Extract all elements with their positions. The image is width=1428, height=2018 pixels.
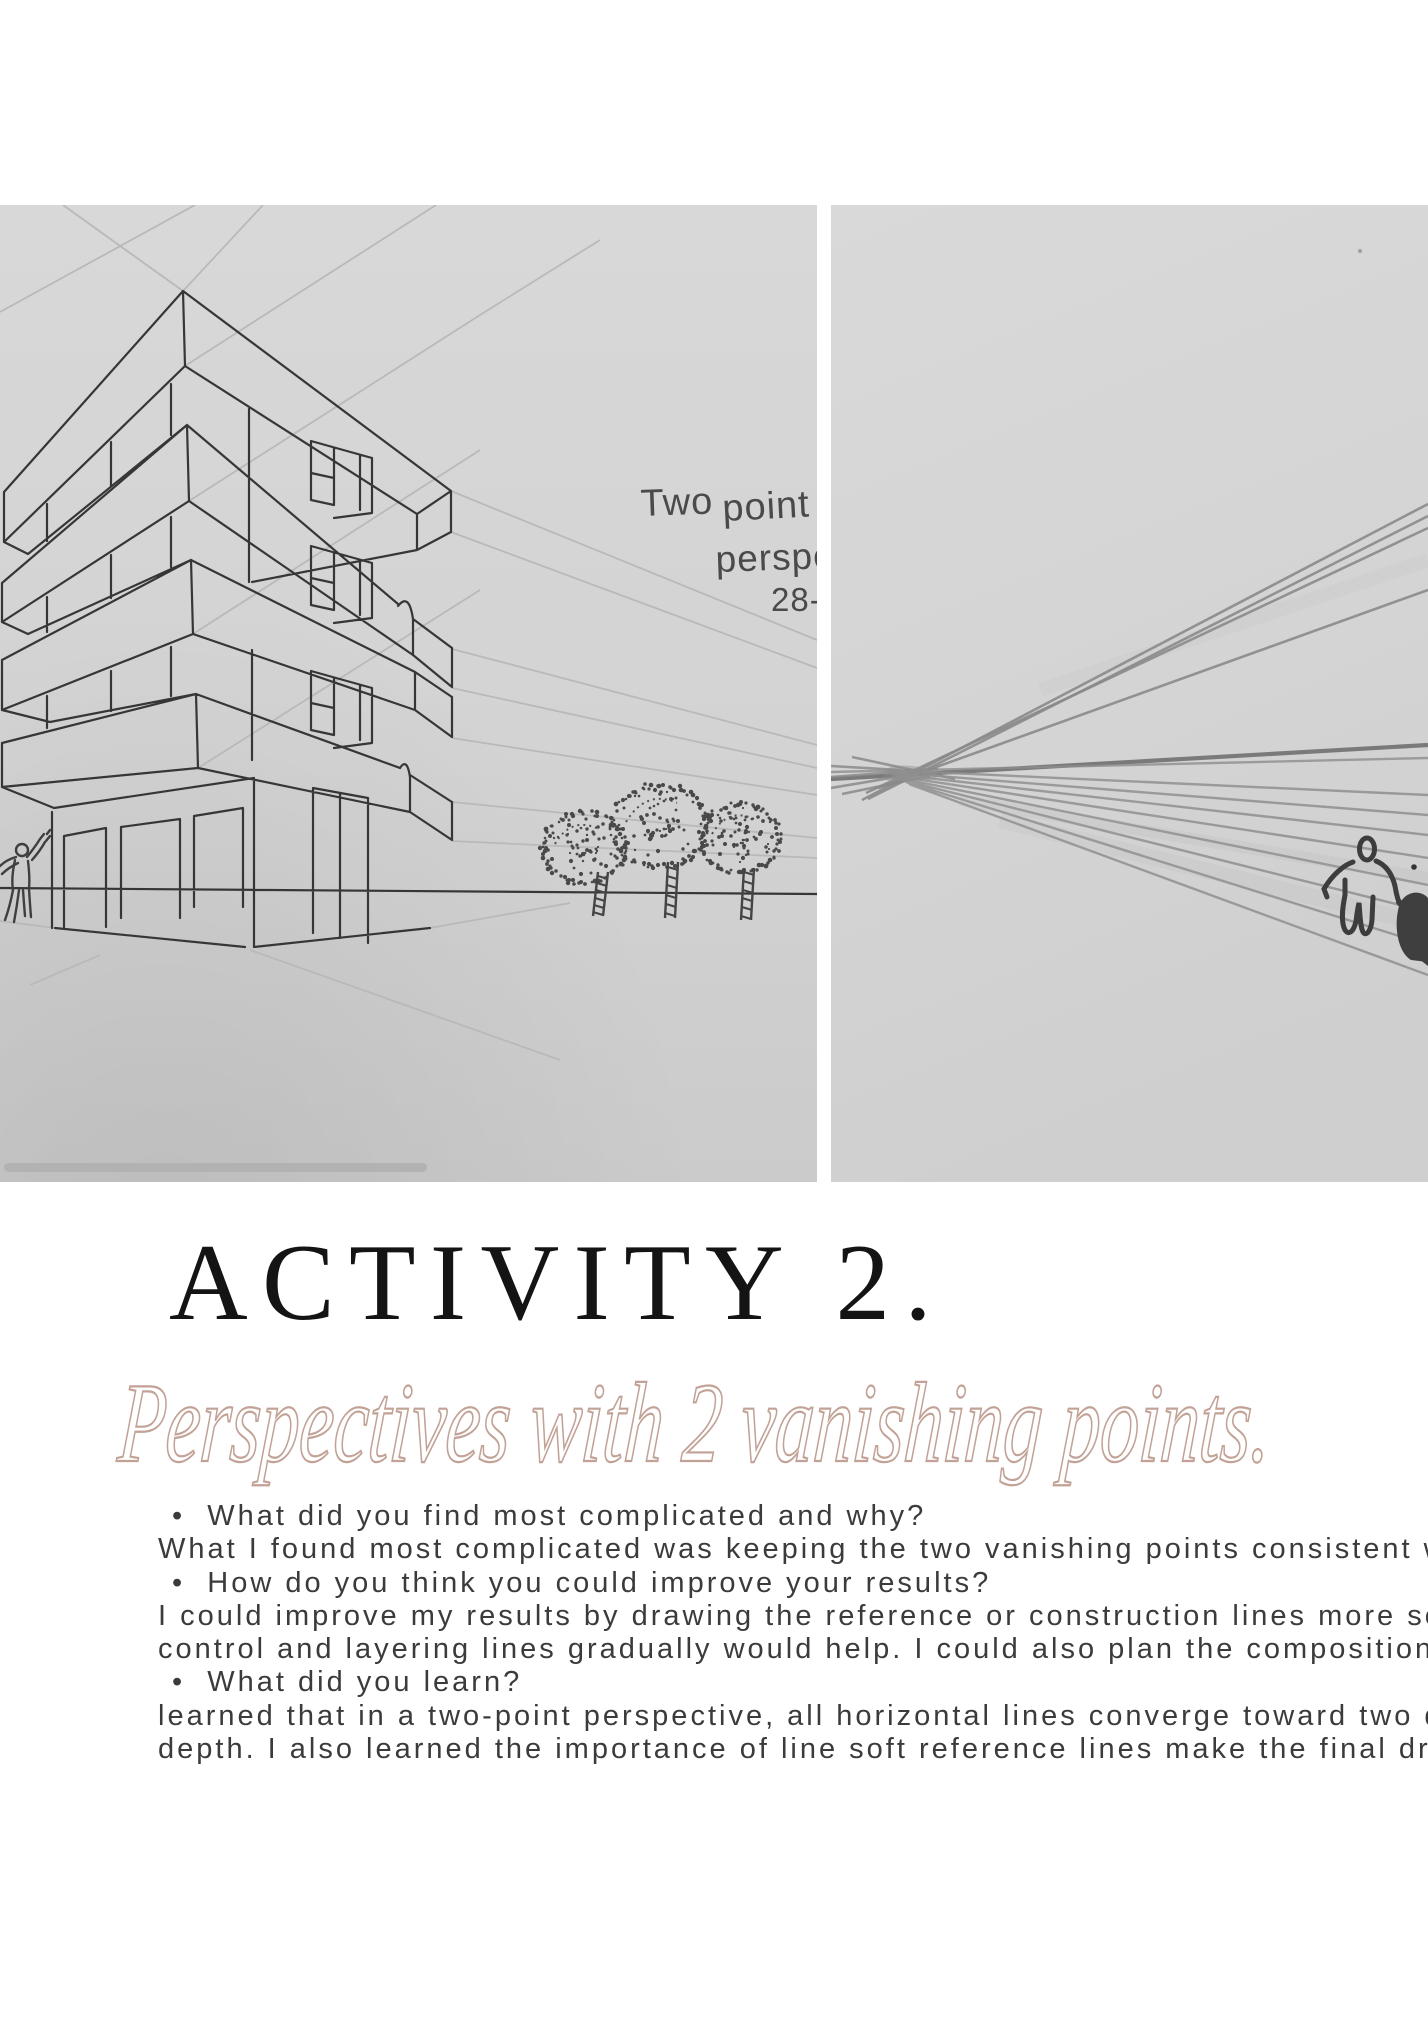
svg-text:point: point — [721, 483, 810, 530]
svg-text:Two: Two — [640, 480, 714, 525]
svg-text:28-: 28- — [771, 581, 817, 618]
svg-text:perspec: perspec — [715, 534, 817, 580]
